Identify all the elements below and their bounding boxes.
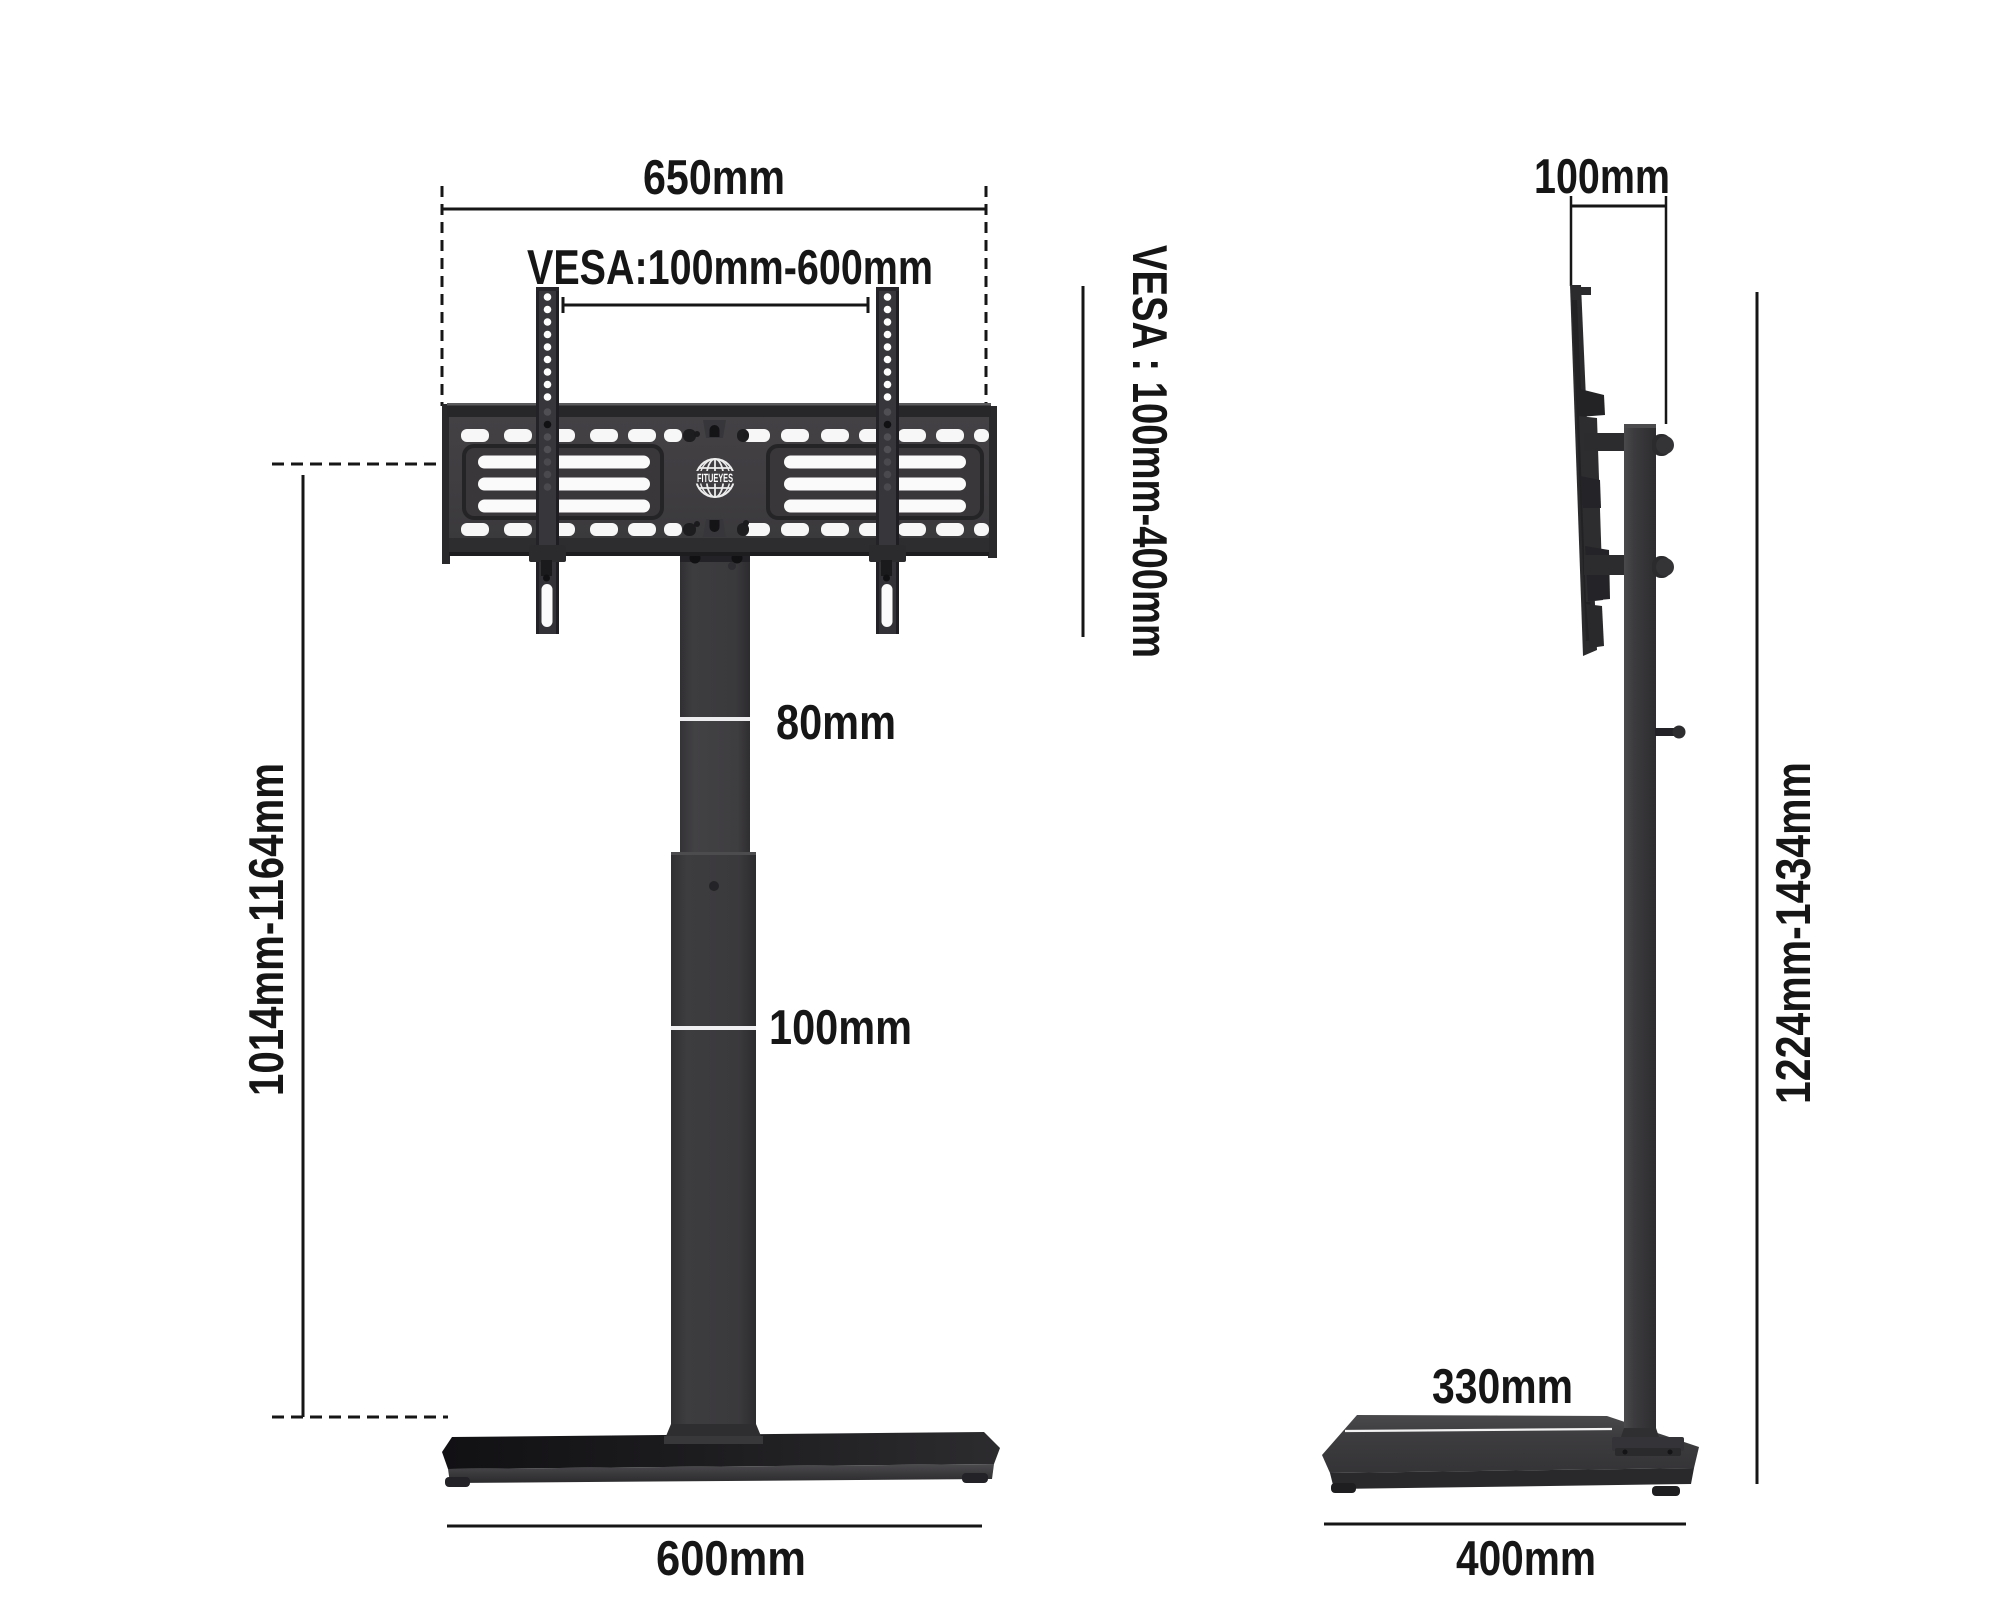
svg-text:600mm: 600mm bbox=[656, 1532, 806, 1586]
svg-text:100mm: 100mm bbox=[769, 1001, 912, 1055]
svg-text:80mm: 80mm bbox=[776, 696, 896, 750]
svg-text:FITUEYES: FITUEYES bbox=[697, 471, 733, 485]
svg-text:1224mm-1434mm: 1224mm-1434mm bbox=[1767, 762, 1821, 1104]
svg-text:330mm: 330mm bbox=[1432, 1360, 1573, 1414]
svg-text:400mm: 400mm bbox=[1456, 1532, 1596, 1586]
svg-text:100mm: 100mm bbox=[1534, 150, 1670, 204]
svg-text:VESA:100mm-600mm: VESA:100mm-600mm bbox=[527, 241, 933, 295]
svg-text:650mm: 650mm bbox=[643, 151, 785, 205]
svg-text:1014mm-1164mm: 1014mm-1164mm bbox=[240, 763, 294, 1096]
svg-text:VESA : 100mm-400mm: VESA : 100mm-400mm bbox=[1122, 245, 1176, 658]
